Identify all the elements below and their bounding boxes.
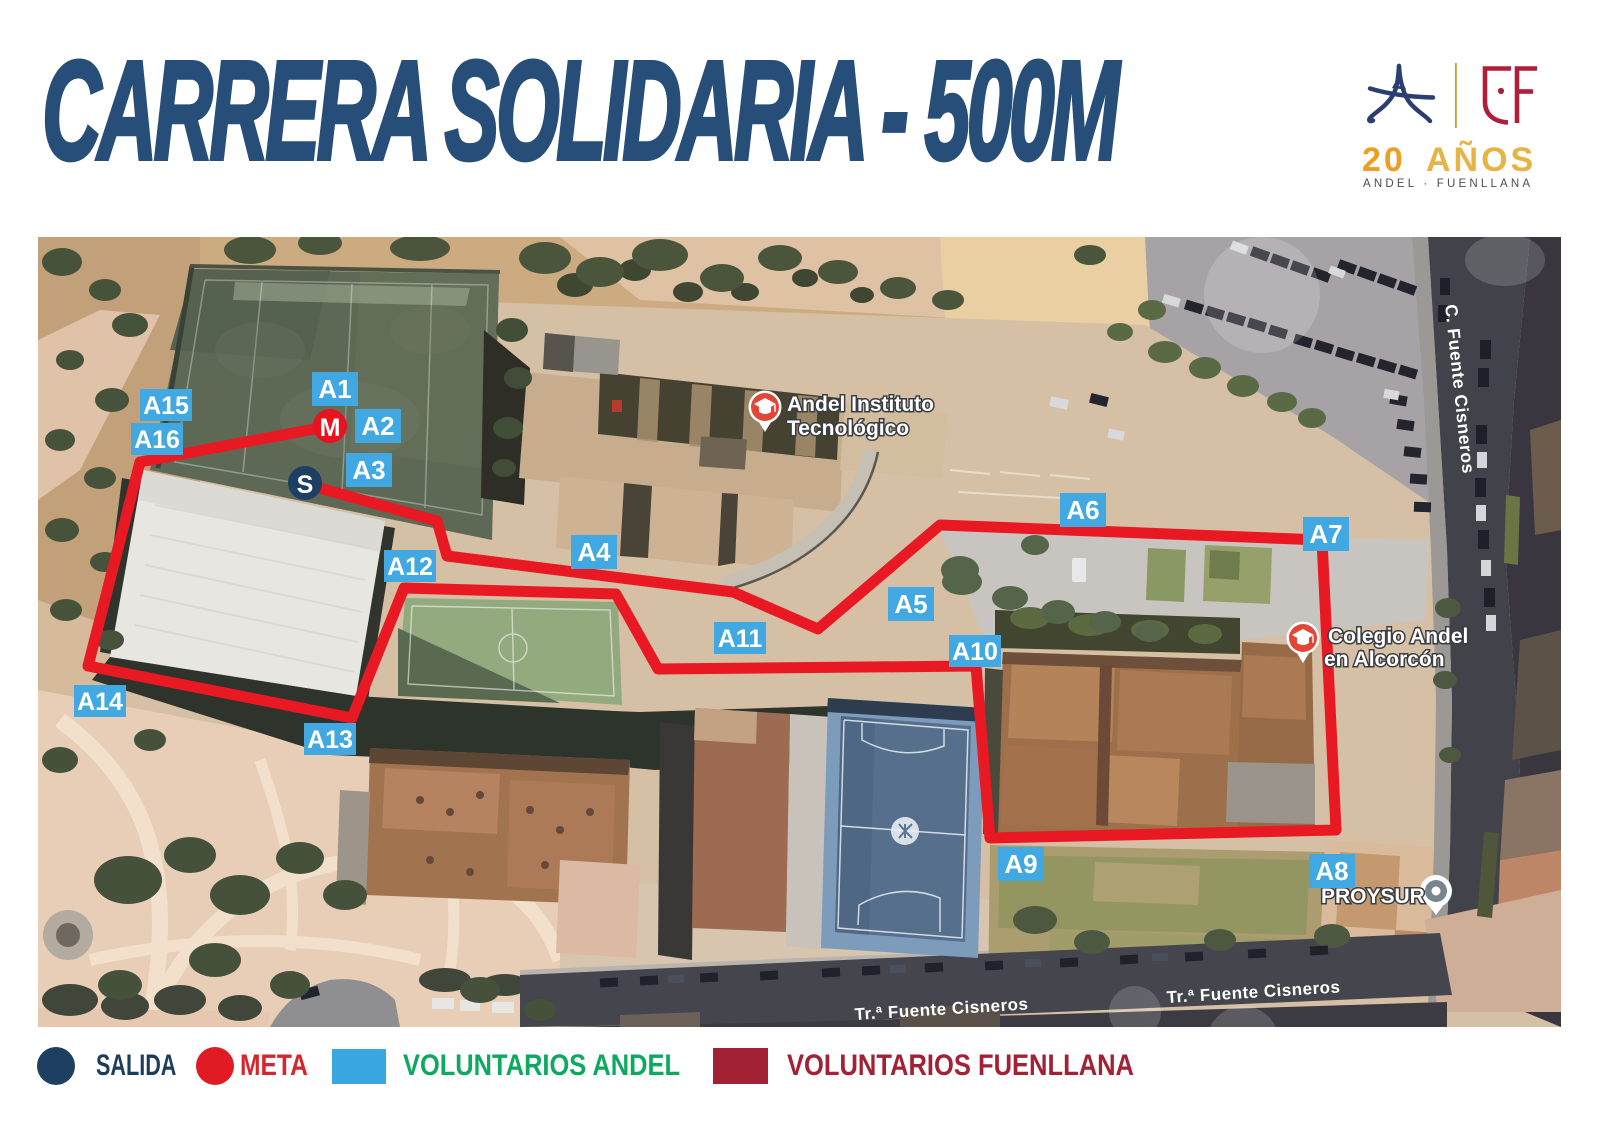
svg-text:A11: A11 bbox=[718, 625, 763, 653]
svg-text:A1: A1 bbox=[318, 374, 351, 404]
svg-text:S: S bbox=[297, 471, 314, 499]
svg-text:A3: A3 bbox=[352, 455, 385, 485]
svg-text:Andel Instituto: Andel Instituto bbox=[787, 393, 934, 416]
svg-text:Tecnológico: Tecnológico bbox=[787, 417, 909, 440]
svg-text:ANDEL · FUENLLANA: ANDEL · FUENLLANA bbox=[1363, 178, 1533, 190]
svg-text:A14: A14 bbox=[77, 688, 123, 716]
svg-text:en Alcorcón: en Alcorcón bbox=[1324, 648, 1445, 671]
svg-text:A13: A13 bbox=[307, 726, 353, 754]
svg-text:A5: A5 bbox=[894, 589, 927, 619]
svg-text:A9: A9 bbox=[1004, 849, 1037, 879]
svg-text:A6: A6 bbox=[1066, 495, 1099, 525]
svg-text:A4: A4 bbox=[577, 537, 611, 567]
svg-text:A8: A8 bbox=[1315, 856, 1348, 886]
svg-text:A15: A15 bbox=[143, 392, 189, 420]
svg-text:A12: A12 bbox=[387, 553, 433, 581]
svg-text:Colegio Andel: Colegio Andel bbox=[1328, 625, 1468, 648]
svg-text:A10: A10 bbox=[952, 638, 998, 666]
svg-text:A2: A2 bbox=[361, 411, 394, 441]
svg-text:20: 20 bbox=[1362, 141, 1406, 179]
svg-text:PROYSUR: PROYSUR bbox=[1321, 885, 1425, 908]
svg-text:M: M bbox=[320, 414, 341, 442]
svg-text:AÑOS: AÑOS bbox=[1426, 141, 1536, 179]
svg-text:A16: A16 bbox=[134, 426, 180, 454]
svg-text:A7: A7 bbox=[1309, 519, 1342, 549]
